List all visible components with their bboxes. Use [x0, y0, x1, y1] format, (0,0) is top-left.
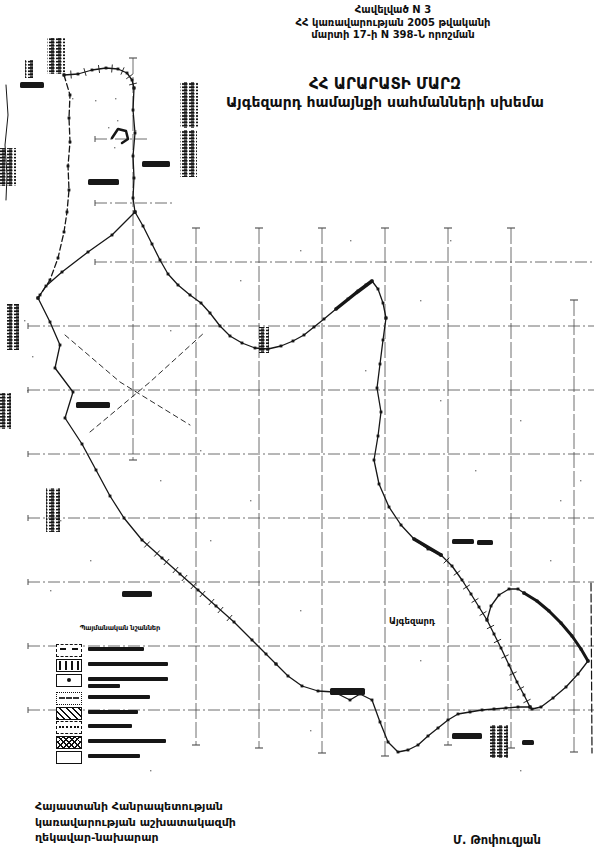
survey-point	[380, 411, 383, 414]
survey-point	[385, 317, 388, 320]
scan-speckle	[300, 250, 301, 251]
scan-speckle	[160, 480, 161, 481]
survey-point	[265, 653, 268, 656]
legend-item	[56, 674, 168, 688]
scan-speckle	[135, 130, 136, 131]
place-label-illegible	[452, 733, 482, 739]
survey-point	[451, 565, 454, 568]
survey-point	[505, 707, 508, 710]
survey-point	[87, 251, 90, 254]
survey-point	[68, 117, 71, 120]
survey-point	[209, 312, 212, 315]
legend-label-illegible	[88, 736, 166, 743]
survey-point	[387, 741, 390, 744]
survey-point	[132, 109, 135, 112]
scan-speckle	[95, 100, 96, 101]
place-label-illegible	[330, 688, 365, 695]
legend-item	[56, 736, 166, 749]
legend-item	[56, 751, 140, 764]
survey-point	[470, 593, 473, 596]
survey-point	[587, 660, 590, 663]
survey-point	[197, 589, 200, 592]
legend-symbol-empty-icon	[56, 751, 82, 764]
survey-point	[349, 699, 352, 702]
scan-speckle	[114, 147, 115, 148]
survey-point	[469, 711, 472, 714]
survey-point	[280, 345, 283, 348]
survey-point	[189, 294, 192, 297]
survey-point	[437, 727, 440, 730]
boundary-inner-dashed-2	[90, 332, 205, 432]
survey-point	[417, 744, 420, 747]
survey-point	[177, 284, 180, 287]
hatch-tick	[98, 65, 99, 73]
place-label-illegible	[88, 179, 119, 185]
survey-point	[251, 639, 254, 642]
legend-item	[56, 707, 138, 720]
survey-point	[500, 647, 503, 650]
survey-point	[378, 483, 381, 486]
survey-point	[523, 592, 526, 595]
legend-symbol-ticks-icon	[56, 659, 82, 672]
scan-speckle	[170, 330, 171, 331]
survey-point	[142, 225, 145, 228]
scan-speckle	[365, 370, 366, 371]
appendix-line-2: ՀՀ կառավարության 2005 թվականի	[240, 17, 546, 30]
survey-point	[508, 588, 511, 591]
survey-point	[493, 708, 496, 711]
survey-point	[161, 557, 164, 560]
survey-point	[376, 387, 379, 390]
survey-point	[536, 600, 539, 603]
stamp-block	[180, 130, 197, 177]
hatch-tick	[463, 585, 470, 589]
signatory-line-2: կառավարության աշխատակազմի	[35, 815, 236, 831]
survey-point	[132, 197, 135, 200]
place-label-illegible	[452, 539, 474, 544]
legend-symbol-hatch-icon	[56, 707, 82, 720]
appendix-line-3: մարտի 17-ի N 398-Ն որոշման	[240, 29, 546, 42]
hatch-tick	[472, 598, 479, 602]
scan-speckle	[300, 610, 301, 611]
scan-speckle	[450, 240, 451, 241]
survey-point	[407, 749, 410, 752]
survey-point	[478, 606, 481, 609]
place-label-illegible	[76, 402, 110, 408]
boundary-loop-thick	[524, 593, 588, 661]
survey-point	[548, 610, 551, 613]
survey-point	[233, 621, 236, 624]
survey-point	[132, 155, 135, 158]
survey-point	[379, 363, 382, 366]
hatch-tick	[454, 571, 461, 576]
survey-point	[517, 588, 520, 591]
survey-point	[37, 297, 40, 300]
survey-point	[377, 435, 380, 438]
survey-point	[498, 594, 501, 597]
scan-speckle	[108, 127, 109, 128]
survey-point	[382, 339, 385, 342]
survey-point	[61, 271, 64, 274]
stamp-block	[490, 725, 508, 758]
survey-point	[560, 622, 563, 625]
survey-point	[133, 177, 136, 180]
survey-point	[63, 231, 66, 234]
legend-label-illegible	[88, 674, 168, 688]
scan-speckle	[520, 770, 521, 771]
survey-point	[447, 719, 450, 722]
hatch-tick	[480, 611, 487, 615]
scan-speckle	[420, 300, 421, 301]
survey-point	[54, 367, 57, 370]
survey-point	[45, 285, 48, 288]
survey-point	[66, 211, 69, 214]
stamp-block	[258, 327, 269, 353]
place-label-illegible	[122, 591, 152, 597]
scan-speckle	[310, 730, 311, 731]
signatory-line-3: ղեկավար-նախարար	[35, 830, 236, 846]
scan-speckle	[150, 770, 151, 771]
survey-point	[373, 459, 376, 462]
survey-point	[179, 573, 182, 576]
survey-point	[301, 685, 304, 688]
survey-point	[303, 334, 306, 337]
survey-point	[516, 681, 519, 684]
appendix-line-1: Հավելված N 3	[240, 4, 546, 17]
survey-point	[517, 706, 520, 709]
survey-point	[313, 326, 316, 329]
scheme-title: Այգեզարդ համայնքի սահմանների սխեմա	[150, 93, 603, 111]
survey-point	[382, 302, 385, 305]
survey-point	[105, 67, 108, 70]
scan-speckle	[560, 500, 561, 501]
survey-point	[63, 74, 66, 77]
survey-point	[440, 554, 443, 557]
scan-speckle	[27, 390, 28, 391]
survey-point	[461, 579, 464, 582]
survey-point	[117, 68, 120, 71]
survey-point	[134, 132, 137, 135]
stamp-block	[46, 488, 60, 532]
scan-speckle	[24, 320, 25, 321]
map-title-block: ՀՀ ԱՐԱՐԱՏԻ ՄԱՐԶ Այգեզարդ համայնքի սահման…	[150, 76, 603, 111]
stamp-block	[6, 304, 19, 350]
boundary-inner-dashed-1	[65, 335, 190, 425]
stamp-block	[25, 60, 33, 78]
boundary-hook-blob	[112, 129, 128, 143]
scan-speckle	[60, 520, 61, 521]
stamp-block	[47, 38, 65, 74]
survey-point	[388, 506, 391, 509]
survey-point	[77, 73, 80, 76]
boundary-u-curve-thick	[336, 281, 372, 309]
scan-speckle	[475, 470, 476, 471]
survey-point	[219, 325, 222, 328]
survey-point	[134, 211, 137, 214]
survey-point	[67, 165, 70, 168]
survey-point	[167, 273, 170, 276]
legend-symbol-dot-icon	[56, 674, 82, 687]
boundary-west-line	[38, 75, 70, 298]
scan-speckle	[550, 560, 551, 561]
scan-speckle	[117, 120, 118, 121]
survey-point	[577, 673, 580, 676]
boundary-north-vertical	[133, 88, 135, 212]
legend-label-illegible	[88, 692, 150, 699]
scan-speckle	[250, 500, 251, 501]
survey-point	[523, 694, 526, 697]
place-label-illegible	[20, 82, 44, 88]
place-label-illegible	[477, 540, 493, 545]
survey-point	[540, 706, 543, 709]
legend-item	[56, 692, 150, 705]
survey-point	[141, 539, 144, 542]
survey-point	[580, 648, 583, 651]
survey-point	[427, 735, 430, 738]
signatory-line-1: Հայաստանի Հանրապետության	[35, 799, 236, 815]
signatory-block: Հայաստանի Հանրապետության կառավարության ա…	[35, 799, 236, 846]
hatch-tick	[112, 65, 113, 73]
survey-point	[379, 721, 382, 724]
survey-point	[317, 690, 320, 693]
legend-symbol-dotted-icon	[56, 721, 82, 734]
legend-item	[56, 721, 132, 734]
scan-speckle	[72, 98, 73, 99]
appendix-block: Հավելված N 3 ՀՀ կառավարության 2005 թվակա…	[240, 4, 546, 42]
scan-speckle	[210, 540, 211, 541]
survey-point	[323, 318, 326, 321]
scan-speckle	[240, 280, 241, 281]
scan-speckle	[520, 420, 521, 421]
signature-name: Մ. Թոփուզյան	[453, 833, 541, 847]
hatch-tick	[71, 71, 72, 79]
survey-point	[508, 664, 511, 667]
survey-point	[95, 469, 98, 472]
survey-point	[151, 243, 154, 246]
scan-speckle	[200, 450, 201, 451]
hatch-tick	[126, 74, 133, 79]
scan-speckle	[32, 356, 33, 357]
survey-point	[109, 495, 112, 498]
survey-point	[287, 675, 290, 678]
survey-point	[400, 524, 403, 527]
legend-item	[56, 659, 168, 672]
legend-symbol-dashes-icon	[56, 692, 82, 705]
survey-point	[377, 288, 380, 291]
survey-point	[486, 619, 489, 622]
scan-speckle	[115, 98, 116, 99]
region-title: ՀՀ ԱՐԱՐԱՏԻ ՄԱՐԶ	[150, 76, 603, 93]
survey-point	[69, 141, 72, 144]
legend-label-illegible	[88, 659, 168, 666]
legend-title: Պայմանական նշաններ	[80, 624, 160, 632]
survey-point	[292, 340, 295, 343]
stamp-block	[0, 393, 11, 429]
survey-point	[529, 706, 532, 709]
legend-label-illegible	[88, 707, 138, 714]
survey-point	[126, 72, 129, 75]
scan-speckle	[350, 240, 351, 241]
place-label: Այգեզարդ	[389, 616, 435, 626]
legend-symbol-cross-icon	[56, 736, 82, 749]
survey-point	[91, 69, 94, 72]
scan-speckle	[440, 400, 441, 401]
boundary-corner-return	[530, 661, 588, 709]
survey-point	[215, 605, 218, 608]
survey-point	[123, 517, 126, 520]
legend-item	[56, 644, 144, 657]
legend-label-illegible	[88, 751, 140, 758]
survey-point	[57, 257, 60, 260]
legend-label-illegible	[88, 721, 132, 728]
boundary-east-border	[591, 583, 592, 753]
scan-speckle	[420, 660, 421, 661]
scan-speckle	[50, 590, 51, 591]
boundary-northwest-diagonal	[38, 212, 135, 298]
survey-point	[229, 335, 232, 338]
survey-point	[68, 189, 71, 192]
survey-point	[81, 443, 84, 446]
survey-point	[481, 709, 484, 712]
survey-point	[571, 635, 574, 638]
survey-point	[254, 347, 257, 350]
survey-point	[59, 344, 62, 347]
survey-point	[64, 417, 67, 420]
place-label-illegible	[522, 740, 534, 745]
survey-point	[69, 94, 72, 97]
boundary-east-vertical	[374, 318, 441, 555]
survey-point	[490, 605, 493, 608]
scan-speckle	[90, 560, 91, 561]
survey-point	[241, 342, 244, 345]
legend-symbol-dashdot-icon	[56, 644, 82, 657]
survey-point	[565, 686, 568, 689]
boundary-southeast-diagonal	[38, 298, 276, 664]
survey-point	[493, 633, 496, 636]
survey-point	[457, 713, 460, 716]
boundary-east-vertical-thick	[414, 539, 441, 555]
survey-point	[397, 751, 400, 754]
boundary-loop-rise	[487, 589, 524, 620]
survey-point	[49, 321, 52, 324]
place-label-illegible	[142, 161, 170, 167]
survey-point	[131, 79, 134, 82]
scan-speckle	[580, 480, 581, 481]
survey-point	[275, 663, 278, 666]
survey-point	[72, 391, 75, 394]
boundary-steep-diagonal	[441, 555, 530, 707]
survey-point	[159, 259, 162, 262]
scanned-map-document: Այգեզարդ Հավելված N 3 ՀՀ կառավարության 2…	[0, 0, 603, 863]
legend-label-illegible	[88, 644, 144, 651]
survey-point	[371, 699, 374, 702]
survey-point	[552, 697, 555, 700]
survey-point	[111, 234, 114, 237]
survey-point	[133, 87, 136, 90]
stamp-block	[0, 148, 16, 186]
survey-point	[200, 302, 203, 305]
